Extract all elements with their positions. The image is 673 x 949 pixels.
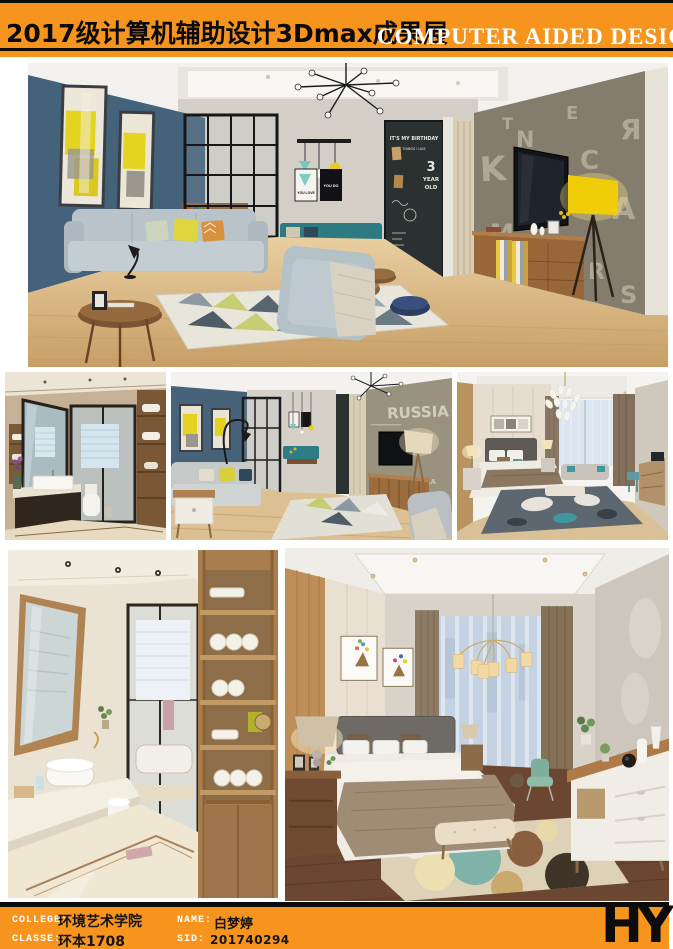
svg-text:YEAR: YEAR [422, 177, 440, 183]
curtain [349, 394, 366, 496]
footer-band: COLLEGE: 环境艺术学院 NAME: 白梦婷 CLASSE: 环本1708… [0, 902, 669, 949]
sid-value: 201740294 [210, 933, 290, 947]
svg-text:Я: Я [620, 113, 642, 146]
pink-towel [163, 700, 174, 730]
svg-text:T: T [502, 114, 513, 133]
bed-bench [545, 486, 585, 496]
svg-text:C: C [580, 146, 599, 176]
ceiling-tray [355, 554, 605, 594]
rendering-bathroom-2 [8, 550, 278, 898]
name-label: NAME: [177, 915, 212, 926]
poster-title-english: COMPUTER AIDED DESIGN [377, 24, 673, 50]
curtain [453, 119, 477, 279]
window [557, 400, 615, 466]
wall-art [491, 416, 531, 432]
svg-text:OLD: OLD [425, 185, 438, 191]
rendering-bathroom-1 [5, 372, 166, 540]
name-value: 白梦婷 [214, 913, 253, 932]
header-underline [0, 48, 673, 51]
svg-text:3: 3 [426, 160, 435, 175]
window-seat [561, 464, 609, 480]
rendering-bedroom-2 [285, 548, 669, 901]
navy-pouf [390, 296, 430, 316]
sofa [64, 209, 268, 273]
college-value: 环境艺术学院 [58, 911, 142, 931]
rendering-bedroom-1 [457, 372, 668, 540]
svg-text:K: K [479, 149, 509, 190]
rendering-living-room-main: YOU LOVE YOU DO IT'S MY BIRTHDAY THINGS … [28, 63, 668, 367]
sid-label: SID: [177, 934, 205, 945]
towel-shelving [198, 550, 278, 898]
tv [514, 147, 568, 231]
svg-text:RUSSIA: RUSSIA [387, 402, 450, 422]
header-band: 2017级计算机辅助设计3Dmax成果展 COMPUTER AIDED DESI… [0, 0, 673, 57]
classe-label: CLASSE: [12, 934, 61, 945]
hy-logo: HY [601, 903, 669, 947]
svg-text:E: E [566, 103, 578, 124]
svg-text:THINGS I LIKE: THINGS I LIKE [401, 147, 425, 151]
wood-shelves [137, 390, 166, 530]
svg-text:YOU DO: YOU DO [324, 184, 339, 188]
angular-mirror [14, 594, 86, 756]
svg-text:IT'S MY BIRTHDAY: IT'S MY BIRTHDAY [390, 136, 439, 142]
armchair-foreground [407, 490, 452, 540]
chalkboard-strip [336, 394, 349, 494]
classe-value: 环本1708 [58, 931, 125, 949]
lower-cabinet [204, 800, 272, 898]
svg-text:YOU LOVE: YOU LOVE [297, 191, 315, 195]
exhibition-poster: 2017级计算机辅助设计3Dmax成果展 COMPUTER AIDED DESI… [0, 0, 673, 949]
rendering-living-room-2: RUSSIA RUSSIA [171, 372, 452, 540]
armchair [276, 245, 385, 343]
svg-text:S: S [620, 281, 637, 309]
